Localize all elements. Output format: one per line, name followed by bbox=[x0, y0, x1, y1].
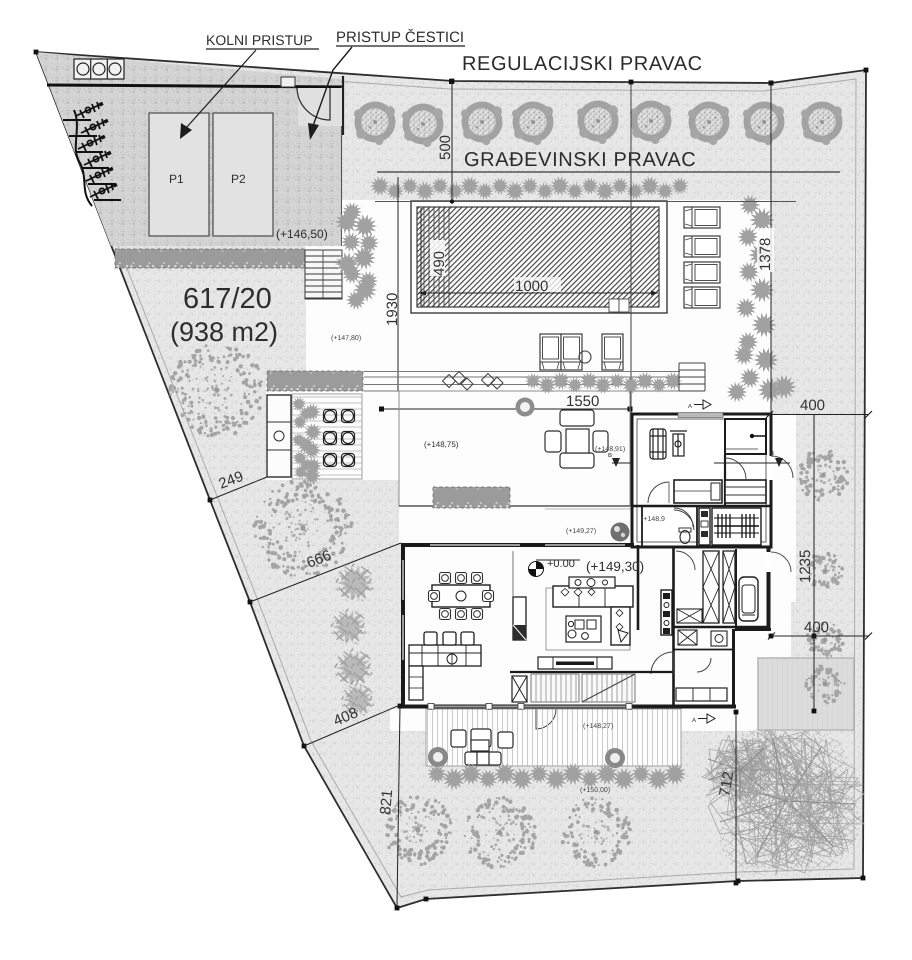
svg-text:1550: 1550 bbox=[566, 393, 599, 410]
svg-text:(938 m2): (938 m2) bbox=[170, 317, 278, 347]
svg-text:(+148,9: (+148,9 bbox=[641, 515, 665, 523]
svg-text:490: 490 bbox=[431, 251, 448, 276]
svg-text:P1: P1 bbox=[169, 172, 184, 186]
svg-text:GRAĐEVINSKI PRAVAC: GRAĐEVINSKI PRAVAC bbox=[464, 149, 696, 171]
svg-text:A: A bbox=[692, 717, 696, 724]
svg-text:PRISTUP ČESTICI: PRISTUP ČESTICI bbox=[336, 28, 464, 46]
svg-text:1378: 1378 bbox=[757, 238, 774, 271]
svg-text:KOLNI PRISTUP: KOLNI PRISTUP bbox=[206, 32, 313, 48]
svg-text:(+146,50): (+146,50) bbox=[276, 227, 328, 241]
svg-text:(+149,27): (+149,27) bbox=[566, 527, 596, 535]
svg-text:(+148,75): (+148,75) bbox=[424, 440, 459, 449]
svg-text:REGULACIJSKI PRAVAC: REGULACIJSKI PRAVAC bbox=[462, 53, 703, 75]
svg-text:(+150,00): (+150,00) bbox=[580, 786, 610, 794]
svg-text:617/20: 617/20 bbox=[183, 283, 272, 315]
svg-text:(+148,27): (+148,27) bbox=[583, 722, 613, 730]
svg-text:(+148,91): (+148,91) bbox=[595, 445, 625, 453]
svg-text:B: B bbox=[608, 452, 612, 459]
svg-text:A: A bbox=[688, 403, 692, 410]
svg-text:P2: P2 bbox=[231, 172, 246, 186]
svg-text:500: 500 bbox=[437, 135, 454, 160]
svg-text:821: 821 bbox=[377, 789, 396, 815]
svg-text:(+147,80): (+147,80) bbox=[331, 334, 361, 342]
svg-text:1235: 1235 bbox=[797, 550, 814, 583]
svg-text:1000: 1000 bbox=[515, 278, 548, 295]
svg-text:(+149,30): (+149,30) bbox=[586, 559, 644, 574]
svg-text:400: 400 bbox=[804, 619, 829, 636]
svg-text:+0.00: +0.00 bbox=[547, 558, 575, 570]
svg-text:B: B bbox=[770, 450, 774, 457]
svg-text:400: 400 bbox=[800, 397, 825, 414]
svg-text:1930: 1930 bbox=[384, 293, 401, 326]
